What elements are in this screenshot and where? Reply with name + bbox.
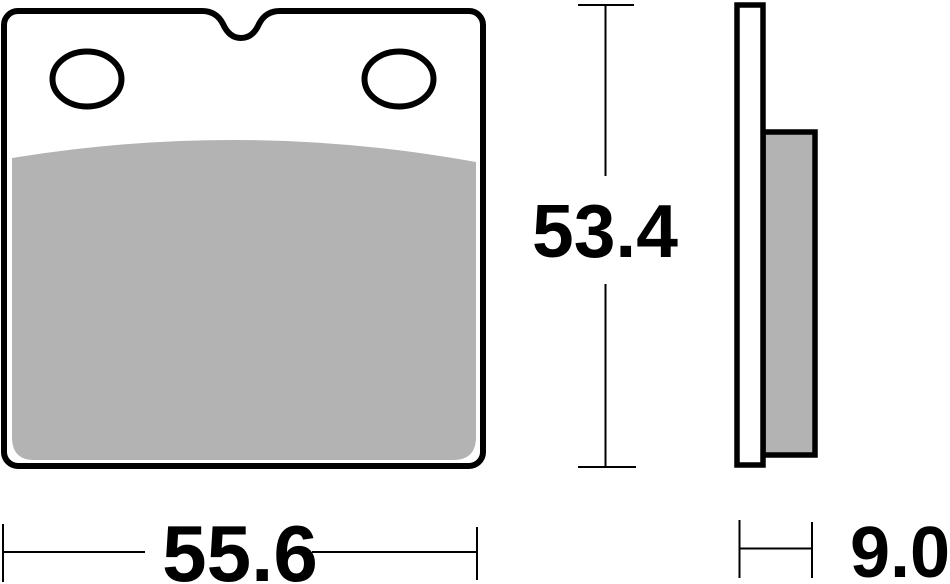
dimension-thickness: 9.0	[740, 513, 950, 584]
technical-drawing-canvas: 55.6 53.4 9.0	[0, 0, 950, 584]
dimension-thickness-label: 9.0	[850, 513, 950, 584]
dimension-width-label: 55.6	[162, 509, 318, 584]
front-view	[4, 11, 483, 466]
mounting-hole-right-icon	[365, 52, 434, 107]
brake-pad-drawing: 55.6 53.4 9.0	[0, 0, 950, 584]
side-view	[737, 5, 815, 465]
backing-plate-side	[737, 5, 763, 465]
friction-material-front	[12, 140, 476, 460]
dimension-width: 55.6	[3, 509, 477, 584]
friction-material-side	[763, 132, 815, 455]
mounting-hole-left-icon	[53, 52, 122, 107]
dimension-height: 53.4	[532, 5, 678, 467]
dimension-height-label: 53.4	[532, 189, 678, 273]
